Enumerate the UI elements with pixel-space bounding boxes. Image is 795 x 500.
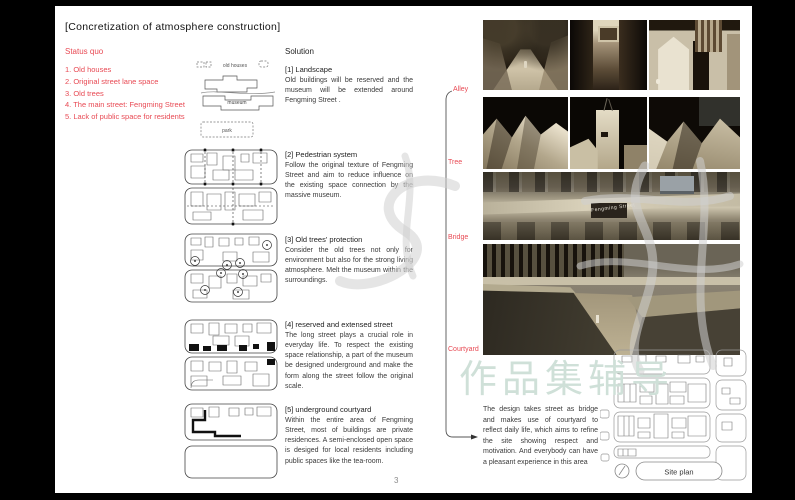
site-plan-label: Site plan: [664, 468, 693, 477]
diagram-pedestrian-system: [183, 148, 280, 228]
document-page: [Concretization of atmosphere constructi…: [55, 6, 752, 493]
figure-silhouette: [596, 315, 599, 323]
connector-label-bridge: Bridge: [447, 234, 469, 241]
solution-section-4: [4] reserved and extensed street The lon…: [285, 320, 413, 392]
site-plan-drawing: Site plan: [600, 348, 750, 488]
status-quo-heading: Status quo: [65, 47, 103, 56]
page-number: 3: [394, 476, 398, 485]
diagram-old-trees: [183, 232, 280, 304]
connector-label-tree: Tree: [447, 159, 463, 166]
diagram-underground-street: [183, 318, 280, 394]
section-body: The long street plays a crucial role in …: [285, 331, 413, 392]
diagram-existing-condition: old houses museum park: [195, 58, 280, 146]
connector-label-courtyard: Courtyard: [447, 346, 480, 353]
window-detail: [601, 132, 609, 138]
model-photo-house-tree: [570, 97, 647, 169]
section-label: [4] reserved and extensed street: [285, 320, 413, 329]
model-box: [660, 176, 693, 194]
portfolio-page-screenshot: { "page": { "title": "[Concretization of…: [0, 0, 795, 500]
diagram-label-park: park: [222, 128, 232, 134]
diagram-label-old-houses: old houses: [223, 63, 248, 69]
model-photo-rooftops-2: [649, 97, 740, 169]
section-body: Consider the old trees not only for envi…: [285, 246, 413, 287]
section-body: Within the entire area of Fengming Stree…: [285, 416, 413, 467]
section-body: Follow the original texture of Fengming …: [285, 161, 413, 202]
connector-label-alley: Alley: [452, 86, 469, 93]
model-photo-street-panorama: Fengming Street: [483, 172, 740, 240]
section-label: [1] Landscape: [285, 65, 413, 74]
section-label: [5] underground courtyard: [285, 405, 413, 414]
solution-heading: Solution: [285, 47, 314, 56]
diagram-label-museum: museum: [227, 100, 246, 106]
model-photo-narrow-alley: [570, 20, 647, 90]
solution-section-1: [1] Landscape Old buildings will be rese…: [285, 65, 413, 106]
section-body: Old buildings will be reserved and the m…: [285, 76, 413, 106]
window-detail: [598, 26, 619, 43]
section-label: [2] Pedestrian system: [285, 150, 413, 159]
page-title: [Concretization of atmosphere constructi…: [65, 21, 280, 33]
solution-section-5: [5] underground courtyard Within the ent…: [285, 405, 413, 467]
connector-line: [435, 84, 485, 456]
model-photo-facade: [649, 20, 740, 90]
solution-section-2: [2] Pedestrian system Follow the origina…: [285, 150, 413, 202]
diagram-underground-courtyard: [183, 402, 280, 480]
conclusion-paragraph: The design takes street as bridge and ma…: [483, 405, 598, 468]
model-photo-courtyard: [483, 244, 740, 355]
section-label: [3] Old trees' protection: [285, 235, 413, 244]
solution-section-3: [3] Old trees' protection Consider the o…: [285, 235, 413, 287]
model-photo-rooftops-1: [483, 97, 568, 169]
figure-silhouette: [524, 61, 527, 68]
arrow-icon: [471, 435, 478, 440]
model-photo-night-alley: [483, 20, 568, 90]
